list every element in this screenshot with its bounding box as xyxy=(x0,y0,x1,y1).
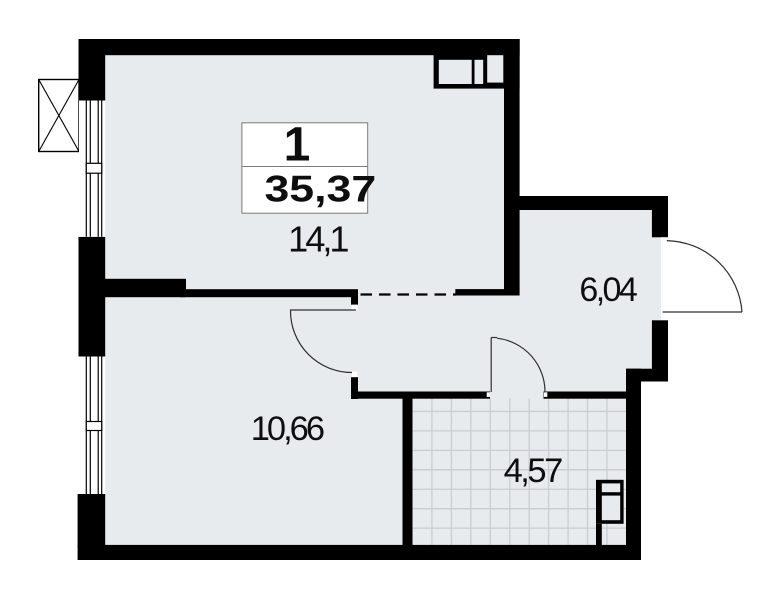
svg-text:6,04: 6,04 xyxy=(579,271,636,309)
svg-text:10,66: 10,66 xyxy=(251,410,324,448)
svg-text:14,1: 14,1 xyxy=(288,219,348,260)
svg-text:35,37: 35,37 xyxy=(264,168,376,210)
svg-text:4,57: 4,57 xyxy=(504,452,562,490)
svg-text:1: 1 xyxy=(284,119,311,172)
